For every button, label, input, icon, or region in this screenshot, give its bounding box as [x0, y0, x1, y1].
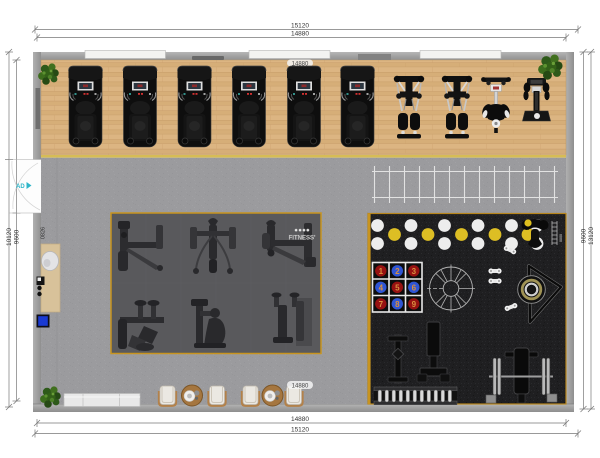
svg-text:9600: 9600	[14, 229, 21, 244]
svg-text:0000: 0000	[559, 234, 563, 242]
svg-text:8: 8	[395, 300, 400, 309]
svg-text:5: 5	[395, 284, 400, 293]
svg-text:10120: 10120	[6, 228, 13, 246]
svg-text:14880: 14880	[291, 416, 309, 423]
svg-text:4: 4	[379, 284, 384, 293]
svg-text:AD: AD	[16, 184, 25, 190]
svg-text:15120: 15120	[291, 23, 309, 30]
svg-text:9600: 9600	[581, 228, 588, 243]
svg-text:3: 3	[412, 267, 417, 276]
svg-text:15120: 15120	[291, 427, 309, 434]
svg-text:FITNESS': FITNESS'	[289, 236, 316, 242]
svg-text:13120: 13120	[588, 227, 595, 245]
svg-text:7: 7	[379, 300, 384, 309]
svg-text:9: 9	[412, 300, 417, 309]
svg-text:14880: 14880	[292, 384, 309, 390]
svg-text:2: 2	[395, 267, 400, 276]
svg-text:●●●●: ●●●●	[294, 227, 310, 234]
svg-text:6: 6	[412, 284, 417, 293]
svg-text:14880: 14880	[291, 31, 309, 38]
svg-text:0826: 0826	[41, 227, 47, 239]
svg-text:1: 1	[379, 267, 384, 276]
